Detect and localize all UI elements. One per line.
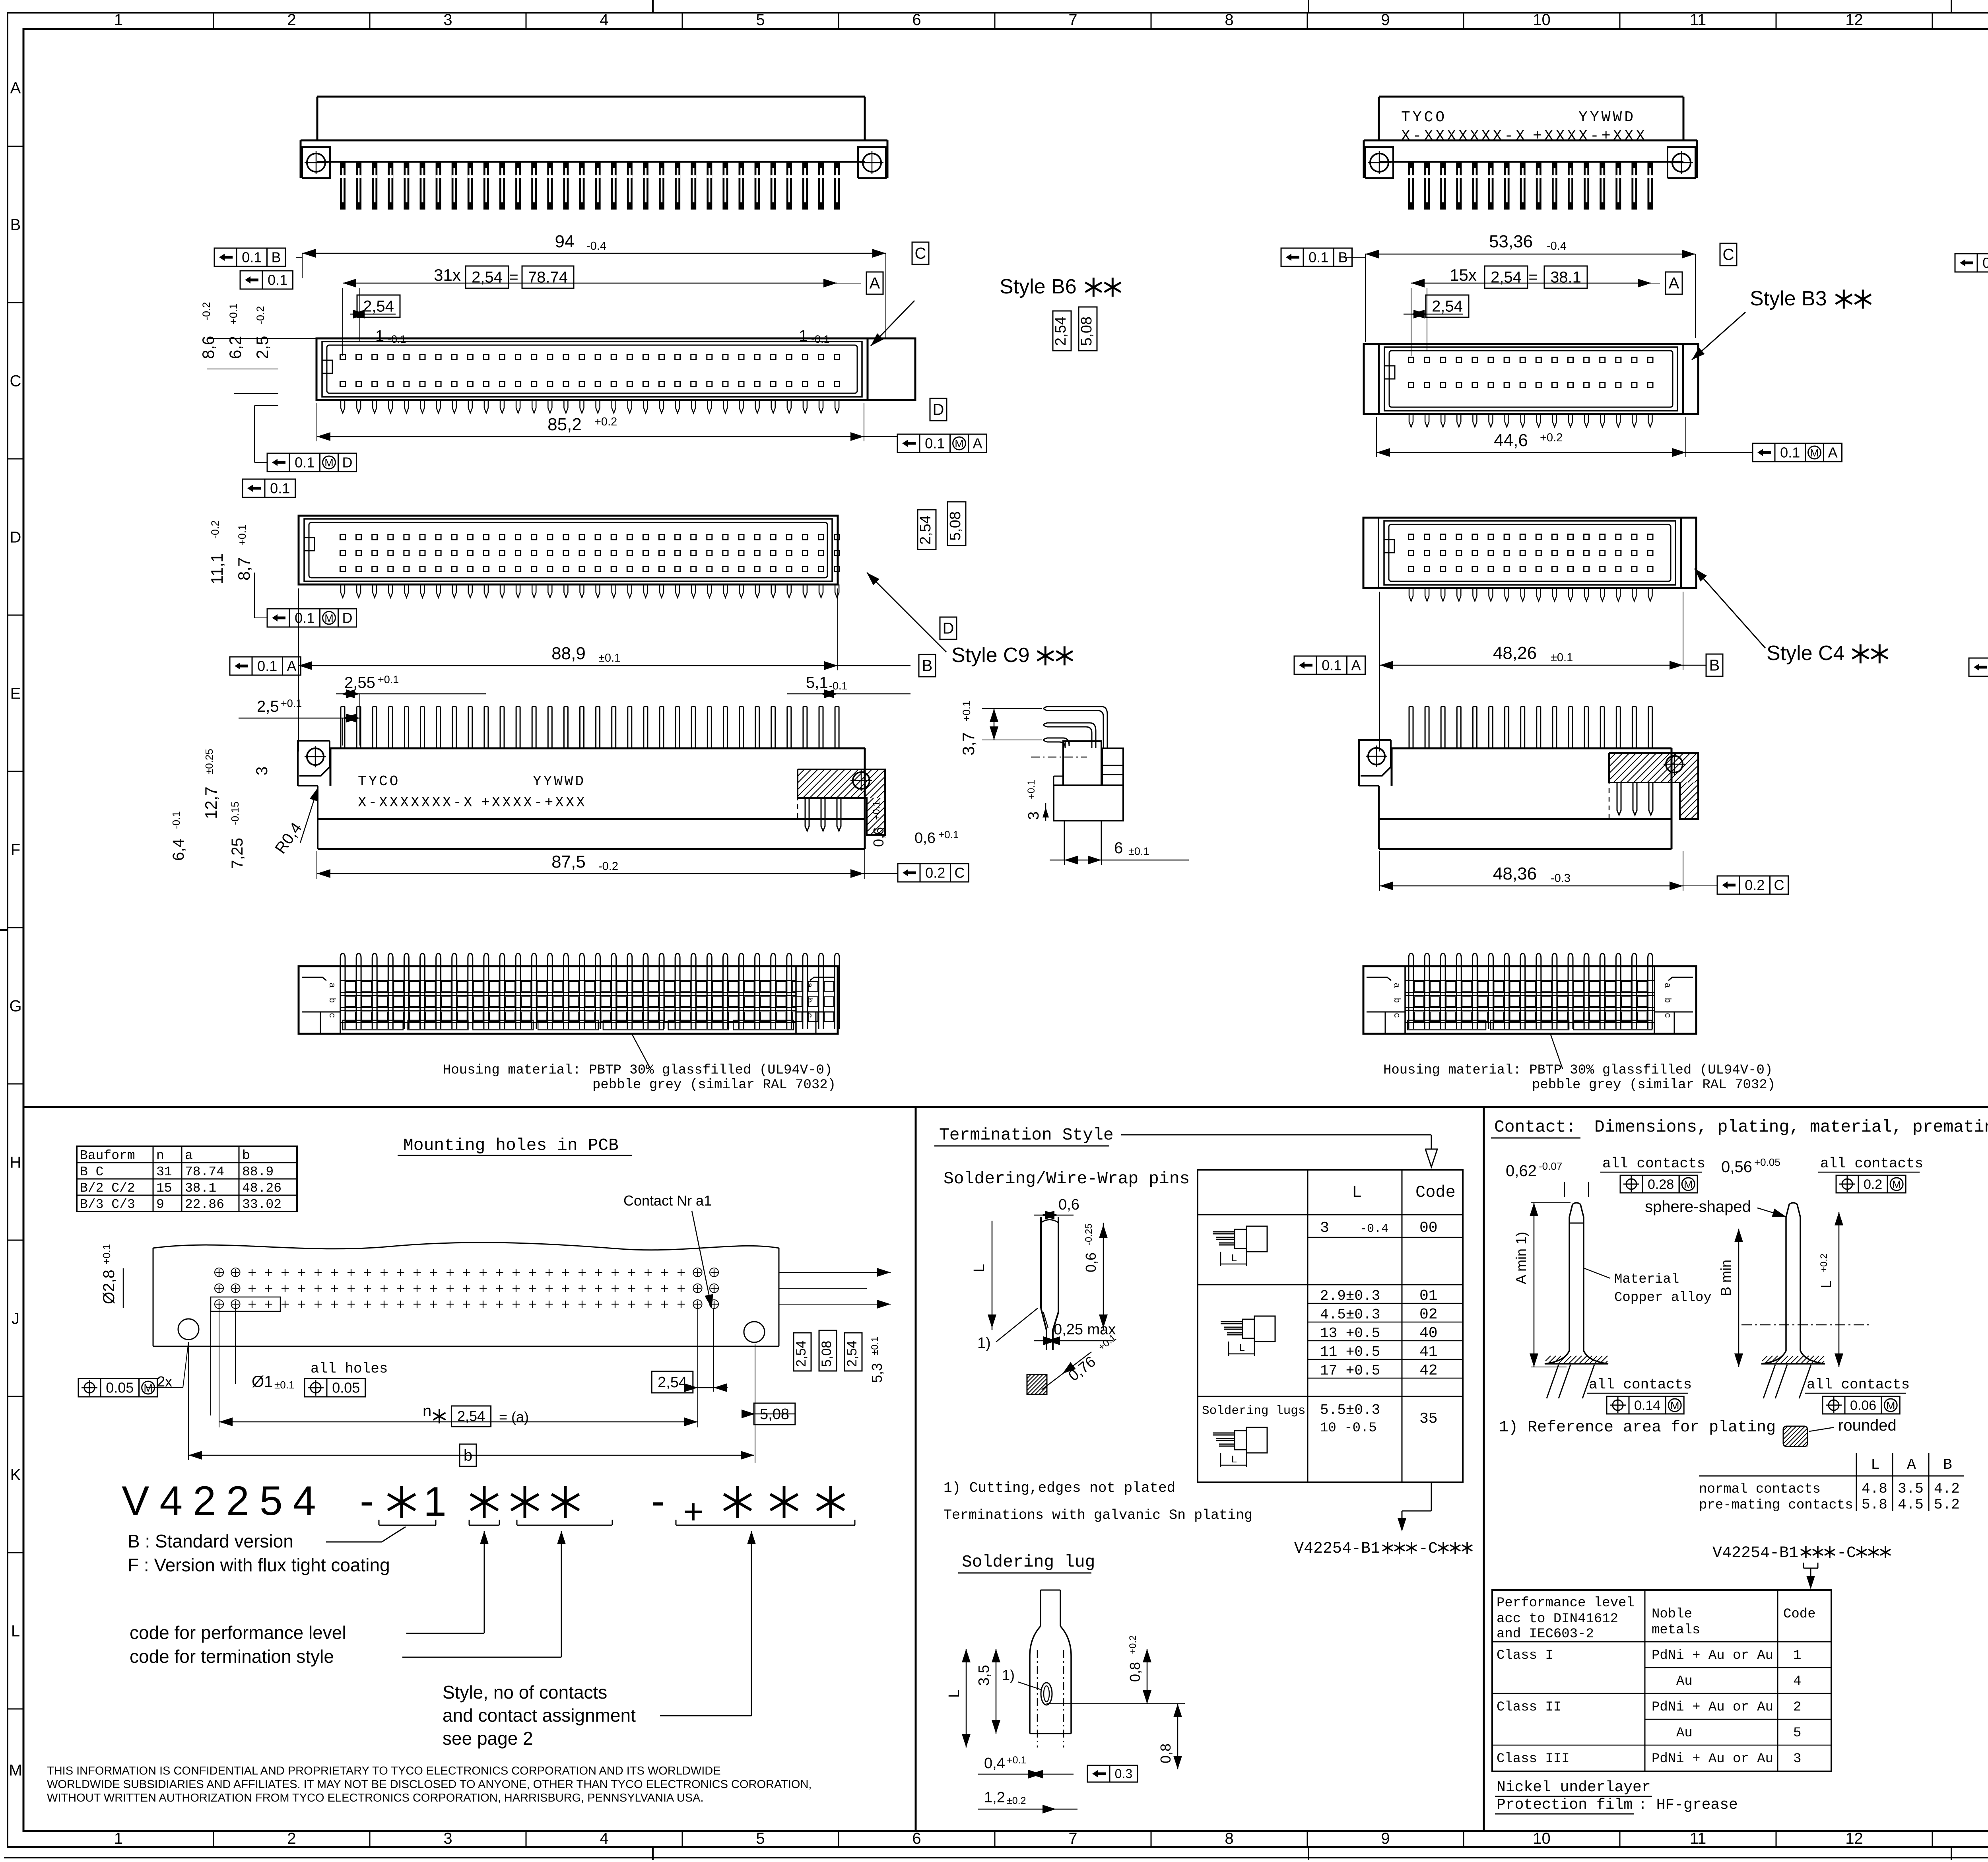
svg-text:C: C [915,245,926,262]
svg-text:Class II: Class II [1497,1700,1561,1715]
svg-text:5.2: 5.2 [1934,1497,1960,1513]
svg-text:-0.25: -0.25 [1083,1223,1094,1245]
svg-text:+0.05: +0.05 [1754,1156,1780,1168]
svg-text:Au: Au [1676,1726,1693,1741]
svg-text:4: 4 [600,1830,608,1847]
svg-text:c: c [1392,1013,1402,1018]
svg-text:c: c [1662,1013,1672,1018]
svg-text:L: L [971,1264,988,1272]
svg-text:5,08: 5,08 [1078,316,1095,346]
svg-text:0.1: 0.1 [1322,657,1342,674]
svg-text:YYWWD: YYWWD [1578,109,1636,126]
svg-text:G: G [9,998,21,1015]
svg-text:0.05: 0.05 [332,1380,360,1396]
svg-text:D: D [943,620,954,637]
svg-text:2,54: 2,54 [457,1408,485,1424]
svg-text:B/2 C/2: B/2 C/2 [80,1181,135,1196]
svg-text:+0.1: +0.1 [281,697,302,709]
svg-text:F : Version with flux tight co: F : Version with flux tight coating [128,1555,390,1575]
svg-text:and contact assignment: and contact assignment [443,1705,636,1726]
svg-text:Terminations with galvanic Sn: Terminations with galvanic Sn plating [944,1507,1252,1523]
svg-text:Material: Material [1614,1272,1679,1287]
svg-text:7: 7 [1068,1830,1077,1847]
svg-text:b: b [327,998,337,1003]
svg-text:10 -0.5: 10 -0.5 [1320,1421,1377,1436]
svg-text:n: n [423,1402,431,1420]
svg-text:M: M [1684,1179,1693,1190]
svg-text:n: n [156,1148,164,1163]
svg-text:0,25 max: 0,25 max [1054,1321,1116,1338]
svg-text:M: M [9,1762,22,1779]
svg-text:+0.1: +0.1 [378,674,399,685]
svg-text:0.2: 0.2 [925,865,945,881]
svg-text:Style C9: Style C9 [951,644,1030,667]
svg-text:1: 1 [1793,1648,1801,1663]
svg-text:Soldering/Wire-Wrap pins: Soldering/Wire-Wrap pins [944,1169,1190,1188]
svg-text:Class III: Class III [1497,1751,1570,1767]
svg-text:0,62: 0,62 [1506,1162,1537,1180]
svg-text:-C: -C [1837,1544,1856,1562]
svg-text:5: 5 [1793,1726,1801,1741]
svg-text:2,54: 2,54 [658,1374,687,1391]
svg-text:2x: 2x [157,1373,172,1390]
svg-text:31: 31 [156,1165,172,1179]
svg-text:-: - [651,1478,665,1524]
svg-text:0.1: 0.1 [295,454,315,471]
svg-text:B: B [1338,249,1347,266]
svg-text:2,54: 2,54 [472,269,503,286]
svg-text:+0.1: +0.1 [938,829,959,841]
svg-text:48,36: 48,36 [1493,864,1537,883]
svg-text:1) Cutting,edges not plated: 1) Cutting,edges not plated [944,1480,1175,1496]
svg-text:7,25: 7,25 [229,838,246,869]
svg-text:-C: -C [1419,1540,1438,1558]
svg-text:+0.1: +0.1 [101,1244,113,1264]
svg-text:TYCO: TYCO [1401,109,1447,126]
svg-text:Au: Au [1676,1674,1693,1689]
svg-text:44,6: 44,6 [1494,431,1528,450]
svg-text:V42254: V42254 [122,1478,326,1524]
svg-text:±0.2: ±0.2 [1007,1795,1026,1806]
svg-text:-0.4: -0.4 [1360,1222,1388,1236]
svg-text:6: 6 [1114,839,1123,857]
svg-text:12: 12 [1845,1830,1863,1847]
svg-text:all contacts: all contacts [1820,1155,1923,1172]
svg-text:35: 35 [1419,1410,1438,1427]
svg-text:and IEC603-2: and IEC603-2 [1497,1627,1594,1642]
svg-text:M: M [324,457,334,469]
svg-text:0,6: 0,6 [914,830,936,847]
svg-text:J: J [12,1310,19,1328]
svg-text:87,5: 87,5 [551,852,586,872]
svg-text:=: = [509,268,518,286]
svg-text:D: D [342,610,353,626]
svg-text:0,6: 0,6 [870,827,887,847]
svg-text:0,6: 0,6 [1058,1196,1079,1213]
svg-text:E: E [10,685,21,703]
svg-text:-0.2: -0.2 [254,306,266,324]
svg-text:5.8: 5.8 [1862,1497,1887,1513]
svg-text:A min 1): A min 1) [1513,1232,1529,1284]
svg-text:8,7: 8,7 [235,557,253,581]
svg-text:2,54: 2,54 [794,1341,809,1367]
svg-text:Performance level: Performance level [1497,1596,1635,1611]
svg-text:A: A [1351,657,1361,674]
svg-text:±0.1: ±0.1 [870,1336,880,1355]
svg-text:12,7: 12,7 [202,786,220,819]
svg-text:+0.2: +0.2 [594,416,617,428]
svg-text:M: M [1886,1400,1895,1412]
svg-text:0,6: 0,6 [1083,1252,1099,1272]
svg-text:A: A [287,658,296,674]
svg-text:+XXXX-+XXX: +XXXX-+XXX [481,794,587,811]
svg-text:-0.2: -0.2 [209,520,221,539]
svg-text:H: H [10,1154,21,1171]
svg-text:11,1: 11,1 [208,553,226,584]
svg-text:+0.1: +0.1 [1026,780,1037,799]
svg-text:D: D [342,454,353,471]
svg-text:all contacts: all contacts [1589,1377,1692,1393]
svg-text:10: 10 [1533,11,1551,29]
svg-text:Code: Code [1783,1607,1816,1622]
svg-text:B/3 C/3: B/3 C/3 [80,1197,135,1212]
svg-text:B: B [10,216,21,234]
svg-text:-0.2: -0.2 [598,860,618,873]
svg-text:A: A [10,80,21,97]
svg-text:78.74: 78.74 [528,269,568,286]
svg-text:Code: Code [1415,1183,1456,1202]
svg-text:b: b [464,1447,472,1464]
svg-text:9: 9 [1381,1830,1390,1847]
svg-text:78.74: 78.74 [185,1165,224,1179]
svg-text:9: 9 [156,1197,164,1212]
svg-text:all contacts: all contacts [1602,1155,1705,1172]
svg-text:all holes: all holes [311,1361,388,1377]
svg-text:2,5: 2,5 [253,336,272,359]
svg-text:rounded: rounded [1838,1417,1897,1434]
svg-text:M: M [1670,1400,1679,1412]
svg-text:40: 40 [1419,1325,1438,1342]
svg-text:7: 7 [1068,11,1077,29]
svg-text:0.2: 0.2 [1864,1177,1882,1192]
svg-text:M: M [955,438,964,450]
svg-text:c: c [804,1013,814,1018]
svg-text:4.8: 4.8 [1862,1481,1887,1497]
svg-text:1) Reference area for plating: 1) Reference area for plating [1499,1419,1776,1437]
svg-text:WITHOUT WRITTEN AUTHORIZATION: WITHOUT WRITTEN AUTHORIZATION FROM TYCO … [47,1792,704,1804]
svg-text:4.5±0.3: 4.5±0.3 [1320,1307,1380,1323]
svg-text:0.1: 0.1 [268,272,287,288]
svg-text:b: b [804,998,814,1003]
svg-text:5.5±0.3: 5.5±0.3 [1320,1402,1380,1418]
svg-text:4.2: 4.2 [1934,1481,1960,1497]
svg-text:1): 1) [1002,1667,1015,1683]
svg-text:3: 3 [443,11,452,29]
svg-text:0,8: 0,8 [1157,1744,1174,1763]
svg-text:pre-mating contacts: pre-mating contacts [1699,1498,1853,1513]
svg-text:all contacts: all contacts [1807,1377,1910,1393]
svg-text:3.5: 3.5 [1898,1481,1924,1497]
svg-text:6,4: 6,4 [170,839,187,861]
svg-text:PdNi + Au or Au: PdNi + Au or Au [1652,1700,1773,1715]
svg-text:6,2: 6,2 [226,336,245,359]
svg-text:-0.3: -0.3 [1551,872,1571,885]
svg-text:Style C4: Style C4 [1767,642,1845,665]
svg-text:X-XXXXXXX-X: X-XXXXXXX-X [1401,128,1527,145]
svg-text:2,54: 2,54 [1491,269,1522,286]
svg-text:D: D [10,529,21,546]
svg-text:0.28: 0.28 [1648,1177,1674,1192]
svg-text:: HF-grease: : HF-grease [1638,1796,1738,1813]
svg-text:-0.4: -0.4 [586,240,606,252]
svg-text:00: 00 [1419,1219,1438,1237]
svg-text:6: 6 [912,11,921,29]
svg-text:a: a [1392,982,1402,988]
svg-text:0,8: 0,8 [1127,1662,1143,1682]
svg-text:42: 42 [1419,1362,1438,1379]
svg-text:Contact:: Contact: [1494,1117,1576,1137]
svg-text:WORLDWIDE SUBSIDIARIES AND AFF: WORLDWIDE SUBSIDIARIES AND AFFILIATES. I… [47,1778,812,1791]
svg-text:2,54: 2,54 [845,1341,860,1367]
svg-text:Style B6: Style B6 [1000,275,1077,298]
svg-text:acc to DIN41612: acc to DIN41612 [1497,1612,1618,1627]
svg-text:Bauform: Bauform [80,1148,135,1163]
svg-text:see page 2: see page 2 [443,1728,533,1749]
svg-text:0.1: 0.1 [1309,249,1328,266]
svg-text:metals: metals [1652,1623,1700,1638]
svg-text:5: 5 [756,1830,765,1847]
svg-text:Style B3: Style B3 [1750,287,1827,310]
svg-text:94: 94 [555,232,575,251]
svg-text:+0.1: +0.1 [871,801,882,820]
svg-text:B : Standard version: B : Standard version [128,1531,293,1551]
svg-text:-0.1: -0.1 [829,680,848,692]
svg-text:B: B [1709,657,1720,674]
svg-text:11: 11 [1690,11,1706,29]
svg-text:17 +0.5: 17 +0.5 [1320,1363,1380,1379]
svg-text:85,2: 85,2 [547,415,582,434]
svg-text:sphere-shaped: sphere-shaped [1645,1198,1751,1215]
svg-text:±0.1: ±0.1 [598,652,621,664]
svg-text:c: c [327,1013,337,1018]
svg-text:THIS INFORMATION IS CONFIDENTI: THIS INFORMATION IS CONFIDENTIAL AND PRO… [47,1765,721,1777]
svg-text:-: - [360,1478,374,1524]
svg-text:3,5: 3,5 [976,1665,992,1686]
svg-text:10: 10 [1533,1830,1551,1847]
svg-text:3,7: 3,7 [959,732,978,755]
svg-text:L: L [1352,1183,1362,1202]
svg-text:3: 3 [443,1830,452,1847]
svg-text:3: 3 [253,767,271,775]
svg-text:B min: B min [1718,1260,1734,1296]
svg-text:2,54: 2,54 [1432,298,1463,315]
svg-text:F: F [11,841,20,859]
svg-text:2: 2 [287,1830,296,1847]
svg-text:Protection film: Protection film [1497,1796,1633,1813]
svg-text:C: C [955,865,965,881]
svg-text:+0.2: +0.2 [1128,1635,1138,1654]
svg-text:88,9: 88,9 [551,644,586,663]
svg-text:2,54: 2,54 [917,515,934,545]
svg-text:8,6: 8,6 [199,336,217,359]
svg-text:b: b [1392,998,1402,1003]
svg-text:B: B [1943,1456,1952,1474]
svg-text:A: A [870,275,880,292]
svg-text:1: 1 [423,1479,447,1525]
svg-text:pebble grey (similar RAL 7032): pebble grey (similar RAL 7032) [592,1078,836,1093]
svg-text:0.1: 0.1 [270,480,290,497]
svg-text:D: D [933,401,944,419]
svg-text:3: 3 [1025,812,1042,820]
svg-text:Style, no of contacts: Style, no of contacts [443,1682,607,1703]
svg-text:+0.1: +0.1 [961,701,973,722]
svg-text:12: 12 [1845,11,1863,29]
svg-text:code for termination style: code for termination style [130,1646,334,1667]
svg-text:A: A [1828,445,1837,461]
svg-text:L: L [1871,1456,1880,1474]
svg-text:Ø2,8: Ø2,8 [100,1270,118,1304]
svg-text:2.9±0.3: 2.9±0.3 [1320,1288,1380,1304]
svg-text:53,36: 53,36 [1489,232,1533,251]
svg-text:Noble: Noble [1652,1607,1692,1622]
svg-text:TYCO: TYCO [358,773,400,790]
svg-text:9: 9 [1381,11,1390,29]
svg-text:Soldering lugs: Soldering lugs [1202,1404,1305,1418]
svg-text:0.1: 0.1 [257,658,277,674]
svg-text:2,55: 2,55 [344,674,375,691]
svg-text:01: 01 [1419,1287,1438,1305]
svg-text:code for performance level: code for performance level [130,1622,346,1643]
svg-text:11: 11 [1690,1830,1706,1847]
svg-text:Nickel underlayer: Nickel underlayer [1497,1779,1651,1796]
svg-text:38.1: 38.1 [1550,269,1581,286]
svg-text:5,08: 5,08 [947,511,964,541]
svg-text:0.1: 0.1 [1982,255,1988,271]
svg-text:Class I: Class I [1497,1648,1553,1663]
svg-text:M: M [1810,447,1819,459]
svg-text:0.14: 0.14 [1634,1398,1660,1413]
svg-text:38.1: 38.1 [185,1181,216,1196]
svg-text:0.06: 0.06 [1850,1398,1876,1413]
svg-text:3: 3 [1320,1219,1329,1237]
svg-text:3: 3 [1793,1751,1801,1767]
svg-text:b: b [1662,998,1672,1003]
svg-text:48.26: 48.26 [242,1181,282,1196]
svg-text:22.86: 22.86 [185,1197,224,1212]
svg-text:15: 15 [156,1181,172,1196]
svg-text:11 +0.5: 11 +0.5 [1320,1344,1380,1360]
svg-text:5,08: 5,08 [819,1341,834,1367]
svg-text:1,2: 1,2 [984,1789,1005,1806]
svg-text:+XXXX-+XXX: +XXXX-+XXX [1533,128,1647,145]
svg-text:0.1: 0.1 [242,249,262,266]
svg-text:L: L [1239,1342,1245,1354]
svg-text:5,1: 5,1 [806,674,828,691]
svg-text:2,54: 2,54 [363,298,394,315]
svg-text:L: L [1231,1454,1237,1466]
svg-text:4: 4 [600,11,608,29]
svg-text:b: b [242,1148,250,1163]
svg-text:PdNi + Au or Au: PdNi + Au or Au [1652,1648,1773,1663]
svg-text:15x: 15x [1450,266,1477,284]
svg-text:4: 4 [1793,1674,1801,1689]
svg-text:2,5: 2,5 [257,698,279,715]
svg-text:0.05: 0.05 [106,1380,134,1396]
svg-text:M: M [1892,1179,1901,1190]
svg-text:0.1: 0.1 [295,610,315,626]
svg-text:B: B [271,249,281,266]
svg-text:0,4: 0,4 [984,1755,1005,1772]
svg-text:Dimensions, plating, material,: Dimensions, plating, material, premating [1594,1117,1988,1137]
svg-text:V42254-B1: V42254-B1 [1712,1544,1798,1562]
svg-text:1: 1 [114,11,123,29]
svg-text:B: B [922,657,933,675]
svg-text:Termination Style: Termination Style [939,1125,1114,1145]
svg-text:±0.1: ±0.1 [1551,651,1573,664]
svg-text:a: a [804,982,814,988]
svg-text:2,54: 2,54 [1052,316,1069,346]
svg-text:0.3: 0.3 [1115,1767,1132,1781]
svg-text:A: A [1907,1456,1916,1474]
svg-text:pebble grey (similar RAL 7032): pebble grey (similar RAL 7032) [1532,1078,1775,1093]
svg-text:B C: B C [80,1165,103,1179]
svg-text:=: = [1528,268,1538,286]
svg-text:+0.1: +0.1 [227,303,239,324]
svg-text:K: K [10,1466,21,1484]
svg-text:4.5: 4.5 [1898,1497,1924,1513]
svg-text:= (a): = (a) [499,1409,529,1425]
svg-text:13 +0.5: 13 +0.5 [1320,1325,1380,1342]
svg-text:-0.1: -0.1 [170,811,182,829]
svg-text:8: 8 [1225,1830,1233,1847]
svg-text:±0.25: ±0.25 [203,749,215,775]
svg-text:Ø1: Ø1 [252,1373,273,1390]
svg-text:2: 2 [1793,1700,1801,1715]
svg-text:Soldering lug: Soldering lug [962,1552,1095,1572]
svg-text:PdNi + Au or Au: PdNi + Au or Au [1652,1751,1773,1767]
svg-text:YYWWD: YYWWD [533,773,586,790]
svg-text:L: L [1818,1280,1834,1288]
svg-text:A: A [1669,275,1679,292]
svg-text:31x: 31x [434,266,461,284]
svg-text:Copper alloy: Copper alloy [1614,1290,1712,1305]
svg-text:48,26: 48,26 [1493,643,1537,663]
svg-text:a: a [327,982,337,988]
svg-text:+0.1: +0.1 [1007,1755,1026,1766]
svg-text:0.1: 0.1 [925,435,945,452]
svg-text:1: 1 [114,1830,123,1847]
svg-text:C: C [1774,877,1784,893]
svg-text:A: A [973,435,982,452]
svg-text:M: M [324,612,334,624]
svg-text:8: 8 [1225,11,1233,29]
svg-text:-0.15: -0.15 [229,802,241,825]
svg-text:±0.1: ±0.1 [1128,845,1149,857]
svg-text:L: L [946,1689,963,1698]
svg-text:+0.2: +0.2 [1819,1254,1829,1272]
svg-text:33.02: 33.02 [242,1197,282,1212]
svg-text:0.2: 0.2 [1745,877,1765,893]
svg-text:-0.4: -0.4 [1547,240,1567,252]
svg-text:a: a [185,1148,193,1163]
svg-text:88.9: 88.9 [242,1165,274,1179]
svg-text:X-XXXXXXX-X: X-XXXXXXX-X [358,794,474,811]
svg-text:1): 1) [977,1335,991,1351]
svg-text:0,56: 0,56 [1721,1158,1752,1176]
svg-text:2: 2 [287,11,296,29]
svg-text:5,3: 5,3 [869,1363,885,1383]
svg-text:-0.2: -0.2 [200,302,212,320]
